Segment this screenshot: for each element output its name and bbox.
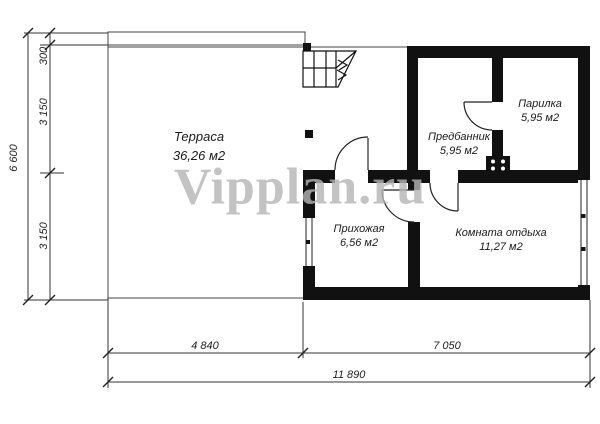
dim-label-3150-bottom: 3 150 [38, 222, 50, 250]
room-label-predbannik: Предбанник 5,95 м2 [428, 130, 490, 158]
wall-segment [458, 170, 590, 183]
room-name: Терраса [173, 127, 225, 146]
dim-label-7050: 7 050 [433, 340, 461, 352]
window-icon [578, 180, 590, 285]
room-name: Комната отдыха [455, 226, 546, 240]
wall-segment [408, 222, 420, 287]
stove-icon [486, 156, 510, 174]
room-name: Прихожая [333, 222, 384, 236]
room-label-lounge: Комната отдыха 11,27 м2 [455, 226, 546, 254]
post-icon [305, 130, 313, 138]
room-area: 5,95 м2 [518, 111, 562, 125]
watermark: Vipplan.ru [174, 158, 426, 217]
post-icon [303, 43, 311, 51]
room-area: 6,56 м2 [333, 236, 384, 250]
room-area: 5,95 м2 [428, 144, 490, 158]
door-swing-icon [464, 102, 492, 130]
door-swing-icon [430, 183, 458, 211]
wall-segment [492, 58, 503, 102]
dim-label-4840: 4 840 [191, 340, 219, 352]
floor-plan: Vipplan.ru Терраса 36,26 м2 Парилка 5,95… [0, 0, 600, 424]
dim-label-3150-top: 3 150 [38, 98, 50, 126]
dim-label-left-total: 6 600 [8, 144, 20, 172]
room-label-parilka: Парилка 5,95 м2 [518, 97, 562, 125]
wall-segment [578, 170, 590, 180]
staircase-icon [303, 51, 356, 87]
window-icon [303, 218, 315, 266]
wall-segment [578, 285, 590, 300]
room-name: Парилка [518, 97, 562, 111]
room-name: Предбанник [428, 130, 490, 144]
room-label-hallway: Прихожая 6,56 м2 [333, 222, 384, 250]
dim-label-300: 300 [38, 47, 50, 65]
room-area: 11,27 м2 [455, 240, 546, 254]
wall-segment [578, 46, 590, 183]
dim-label-bottom-total: 11 890 [333, 369, 366, 381]
wall-segment [303, 287, 590, 300]
wall-segment [407, 46, 590, 58]
wall-segment [492, 130, 503, 158]
